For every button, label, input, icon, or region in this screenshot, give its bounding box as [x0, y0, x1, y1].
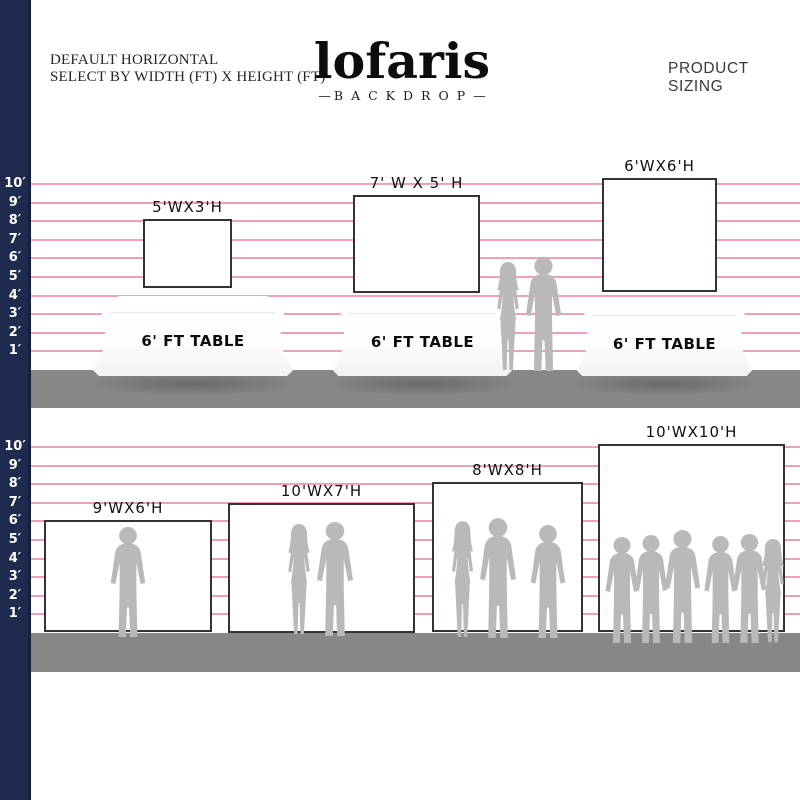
ruler-label-top-9ft: 9′	[0, 195, 30, 211]
ruler-label-bottom-6ft: 6′	[0, 513, 30, 529]
ruler-label-bottom-9ft: 9′	[0, 458, 30, 474]
backdrop-6x6	[602, 178, 717, 292]
table-2: 6' FT TABLE	[333, 297, 512, 376]
ruler-label-top-2ft: 2′	[0, 325, 30, 341]
ruler-label-top-5ft: 5′	[0, 269, 30, 285]
dash-right: —	[473, 88, 486, 103]
backdrop-7x5-label: 7' W X 5' H	[333, 174, 500, 192]
backdrop-5x3-label: 5'WX3'H	[123, 198, 252, 216]
subtitle-line1: DEFAULT HORIZONTAL	[50, 52, 325, 69]
tablecloth-fold	[111, 312, 275, 313]
table-2-label: 6' FT TABLE	[333, 333, 512, 351]
dash-left: —	[318, 88, 331, 103]
backdrop-10x10-label: 10'WX10'H	[578, 423, 800, 441]
brand-logo: lofaris —BACKDROP—	[288, 36, 516, 103]
ruler-label-top-8ft: 8′	[0, 213, 30, 229]
subtitle: DEFAULT HORIZONTAL SELECT BY WIDTH (FT) …	[50, 52, 325, 86]
backdrop-7x5	[353, 195, 480, 293]
ruler-label-bottom-2ft: 2′	[0, 588, 30, 604]
ruler-label-top-6ft: 6′	[0, 250, 30, 266]
brand-subtitle-text: BACKDROP	[334, 88, 473, 103]
person-silhouette-man	[311, 521, 359, 637]
person-silhouette-man	[520, 256, 567, 372]
ruler-label-bottom-8ft: 8′	[0, 476, 30, 492]
ruler-label-bottom-5ft: 5′	[0, 532, 30, 548]
backdrop-10x7-label: 10'WX7'H	[208, 482, 435, 500]
ruler-label-bottom-4ft: 4′	[0, 551, 30, 567]
backdrop-5x3	[143, 219, 232, 288]
ruler-label-top-1ft: 1′	[0, 343, 30, 359]
product-sizing-chart: DEFAULT HORIZONTAL SELECT BY WIDTH (FT) …	[0, 0, 800, 800]
subtitle-line2: SELECT BY WIDTH (FT) X HEIGHT (FT)	[50, 69, 325, 86]
person-silhouette-man	[474, 517, 522, 639]
tablecloth-fold	[593, 315, 737, 316]
backdrop-9x6-label: 9'WX6'H	[24, 499, 232, 517]
page-title: PRODUCT SIZING	[668, 60, 798, 96]
ruler-label-top-3ft: 3′	[0, 306, 30, 322]
table-3-label: 6' FT TABLE	[577, 335, 752, 353]
ruler-label-top-10ft: 10′	[0, 176, 30, 192]
ruler-bar	[0, 0, 31, 800]
backdrop-6x6-label: 6'WX6'H	[582, 157, 737, 175]
person-silhouette-woman	[755, 538, 791, 644]
tablecloth-fold	[349, 313, 496, 314]
person-silhouette-man	[525, 524, 571, 639]
brand-subtitle: —BACKDROP—	[288, 88, 516, 103]
table-1: 6' FT TABLE	[93, 296, 293, 376]
brand-name: lofaris	[288, 36, 516, 86]
ruler-label-top-7ft: 7′	[0, 232, 30, 248]
table-1-label: 6' FT TABLE	[93, 332, 293, 350]
person-silhouette-man	[105, 526, 151, 638]
table-3: 6' FT TABLE	[577, 299, 752, 376]
ruler-label-bottom-7ft: 7′	[0, 495, 30, 511]
ruler-label-bottom-3ft: 3′	[0, 569, 30, 585]
ruler-label-top-4ft: 4′	[0, 288, 30, 304]
backdrop-8x8-label: 8'WX8'H	[412, 461, 603, 479]
ruler-label-bottom-10ft: 10′	[0, 439, 30, 455]
ruler-label-bottom-1ft: 1′	[0, 606, 30, 622]
